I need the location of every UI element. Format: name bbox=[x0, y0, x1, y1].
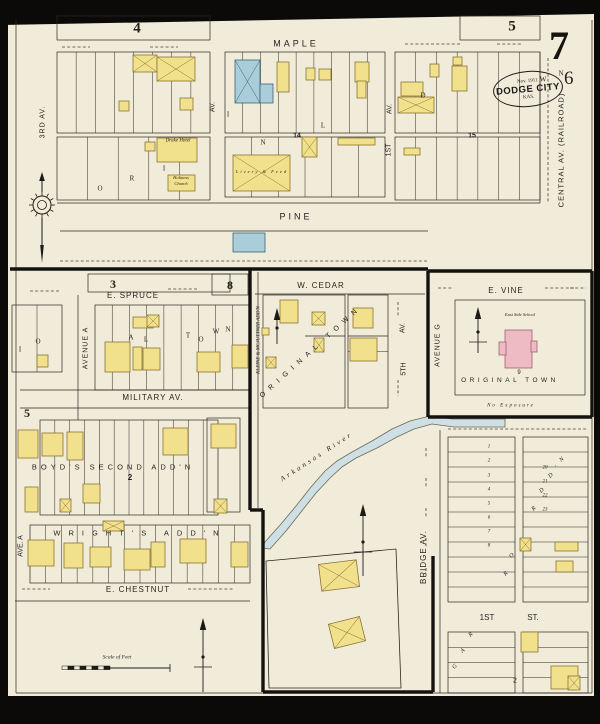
building bbox=[18, 430, 38, 458]
sheet-number: 7 bbox=[549, 22, 569, 69]
building bbox=[355, 62, 369, 82]
scale-bar bbox=[62, 664, 170, 672]
building bbox=[404, 148, 420, 155]
building bbox=[67, 432, 83, 460]
block-outline bbox=[395, 137, 540, 200]
building bbox=[262, 328, 269, 335]
building bbox=[232, 345, 248, 368]
block-outline bbox=[448, 437, 515, 602]
building bbox=[151, 542, 165, 567]
block-outline bbox=[88, 274, 230, 292]
building bbox=[28, 540, 54, 566]
building bbox=[197, 352, 220, 372]
block-outline bbox=[523, 437, 588, 602]
building bbox=[398, 97, 434, 113]
central-av-railroad-label: CENTRAL AV. (RAILROAD) bbox=[557, 93, 566, 208]
map-linework bbox=[0, 0, 600, 724]
building bbox=[180, 98, 193, 110]
building bbox=[338, 138, 375, 145]
building bbox=[306, 68, 315, 80]
building bbox=[42, 433, 63, 456]
building bbox=[260, 84, 273, 103]
building bbox=[302, 137, 317, 157]
building bbox=[318, 560, 359, 591]
building bbox=[521, 632, 538, 652]
building bbox=[520, 538, 531, 551]
building bbox=[157, 138, 197, 162]
north-arrow-icon bbox=[274, 308, 280, 344]
building bbox=[235, 60, 260, 103]
building bbox=[277, 62, 289, 92]
building bbox=[556, 561, 573, 572]
building bbox=[145, 142, 155, 151]
building bbox=[214, 499, 227, 513]
compass-rose-icon bbox=[29, 172, 55, 263]
building bbox=[357, 81, 366, 98]
building bbox=[280, 300, 298, 323]
building bbox=[37, 355, 48, 367]
building bbox=[133, 55, 157, 72]
building bbox=[319, 69, 331, 80]
block-outline bbox=[263, 295, 345, 408]
north-arrow-icon bbox=[194, 618, 212, 692]
building bbox=[430, 64, 439, 77]
building bbox=[233, 233, 265, 252]
block-outline bbox=[460, 16, 540, 40]
building bbox=[124, 549, 150, 570]
building bbox=[312, 312, 325, 325]
building bbox=[505, 330, 532, 368]
building bbox=[233, 155, 290, 191]
building bbox=[401, 82, 423, 96]
building bbox=[231, 542, 248, 567]
building bbox=[90, 547, 111, 567]
building bbox=[83, 484, 100, 503]
building bbox=[133, 347, 142, 370]
building bbox=[180, 539, 206, 563]
building bbox=[453, 57, 462, 65]
building bbox=[168, 175, 195, 191]
building bbox=[103, 521, 124, 531]
building bbox=[211, 424, 236, 448]
block-outline bbox=[57, 16, 210, 40]
building bbox=[143, 348, 160, 370]
building bbox=[328, 617, 365, 649]
stamp-state: KAS. bbox=[523, 94, 535, 100]
north-arrow-icon bbox=[469, 307, 487, 353]
building bbox=[25, 487, 38, 512]
building bbox=[452, 66, 467, 91]
building bbox=[531, 341, 537, 352]
building bbox=[568, 676, 580, 690]
building bbox=[163, 428, 188, 455]
building bbox=[119, 101, 129, 111]
building bbox=[499, 342, 506, 355]
building bbox=[64, 543, 83, 568]
building bbox=[147, 315, 159, 327]
building bbox=[555, 542, 578, 551]
building bbox=[60, 499, 71, 512]
building bbox=[266, 357, 276, 368]
building bbox=[105, 342, 130, 372]
building bbox=[353, 308, 373, 328]
arkansas-river bbox=[262, 416, 505, 549]
building bbox=[350, 338, 377, 361]
building bbox=[157, 57, 195, 81]
sheet-number-alt: 6 bbox=[564, 68, 574, 90]
building bbox=[314, 338, 324, 352]
